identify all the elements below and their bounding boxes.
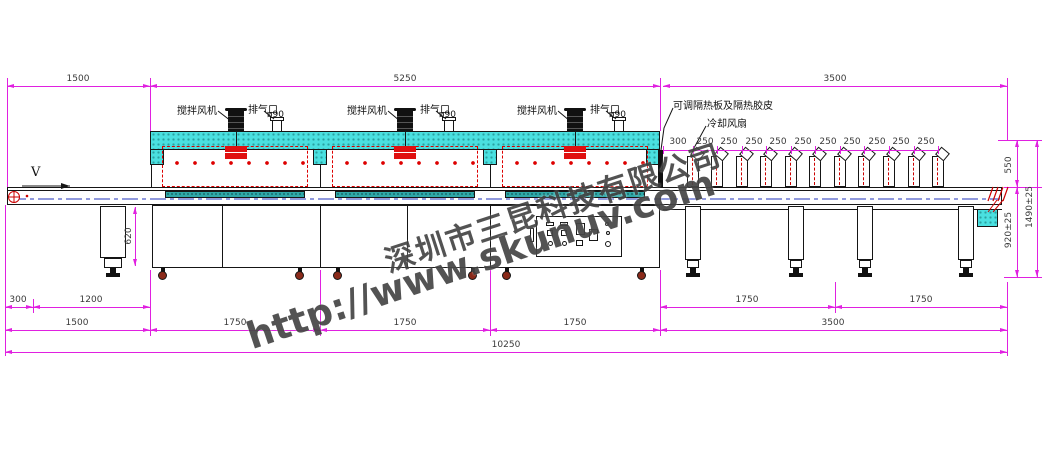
drawing-lines-layer: [0, 0, 1044, 475]
dim-620: 620: [124, 224, 134, 248]
dim-300: 300: [4, 295, 32, 305]
dim-top-1500: 1500: [55, 74, 101, 84]
fan-dim-5: 250: [792, 137, 814, 147]
dim-1490: 1490±25: [1025, 181, 1035, 233]
dim-550: 550: [1004, 150, 1014, 180]
dim-1200: 1200: [71, 295, 111, 305]
dim-1750-r2: 1750: [901, 295, 941, 305]
dim-920: 920±25: [1004, 207, 1014, 253]
stir-fan-label-1: 搅拌风机: [177, 102, 217, 117]
fan-dim-9: 250: [890, 137, 912, 147]
stir-fan-label-2: 搅拌风机: [347, 102, 387, 117]
dim-top-3500: 3500: [812, 74, 858, 84]
dim-total: 10250: [481, 340, 531, 350]
fan-dim-7: 250: [841, 137, 863, 147]
dim-1750-r1: 1750: [727, 295, 767, 305]
dim-1750b: 1750: [385, 318, 425, 328]
fan-dim-0: 300: [667, 137, 689, 147]
stir-fan-label-3: 搅拌风机: [517, 102, 557, 117]
exhaust-dia-3: ø90: [609, 110, 626, 120]
dim-1750a: 1750: [215, 318, 255, 328]
direction-label: V: [31, 165, 40, 180]
dim-top-5250: 5250: [382, 74, 428, 84]
dim-1750c: 1750: [555, 318, 595, 328]
dim-3500b: 3500: [813, 318, 853, 328]
fan-dim-3: 250: [743, 137, 765, 147]
exhaust-dia-1: ø90: [267, 110, 284, 120]
exhaust-dia-2: ø90: [439, 110, 456, 120]
insulation-label: 可调隔热板及隔热胶皮: [673, 97, 773, 112]
fan-dim-8: 250: [866, 137, 888, 147]
fan-dim-1: 250: [694, 137, 716, 147]
cooling-fan-label: 冷却风扇: [707, 115, 747, 130]
fan-dim-10: 250: [915, 137, 937, 147]
fan-dim-2: 250: [718, 137, 740, 147]
engineering-drawing-canvas: 搅拌风机 排气口 ø90 搅拌风机 排气口 ø90 搅拌风机 排气口 ø90: [0, 0, 1044, 475]
fan-dim-6: 250: [817, 137, 839, 147]
fan-dim-4: 250: [767, 137, 789, 147]
dim-1500b: 1500: [57, 318, 97, 328]
